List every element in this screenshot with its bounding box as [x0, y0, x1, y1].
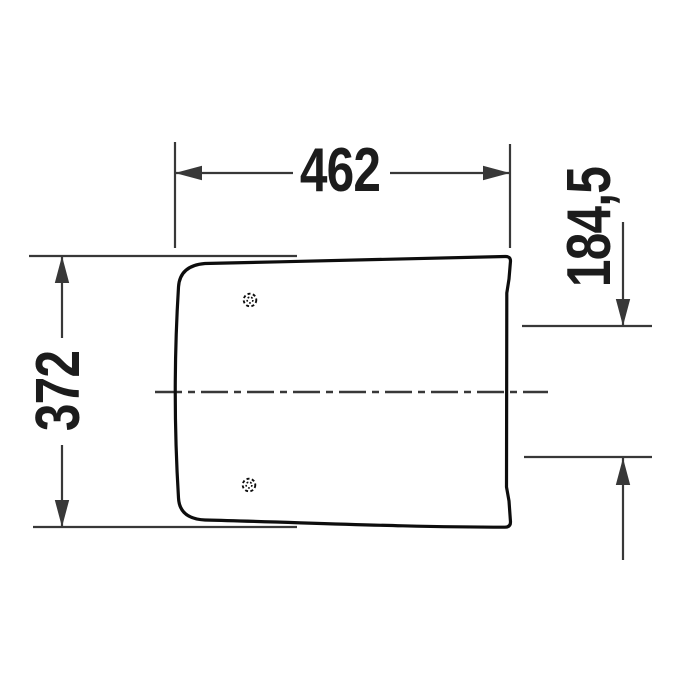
hinge-hole-bottom-outer-circle — [243, 479, 256, 492]
hinge-hole-top-inner-circle — [247, 297, 253, 303]
dim-offset-label: 184,5 — [559, 167, 621, 287]
dim-width-label: 462 — [300, 140, 380, 202]
dim-width-arrow-left — [175, 166, 202, 180]
hinge-hole-bottom — [243, 479, 256, 492]
dim-offset-arrow-down — [616, 299, 630, 326]
hinge-hole-top-outer-circle — [244, 294, 257, 307]
drawing-linework — [0, 0, 700, 700]
dim-depth-arrow-up — [55, 256, 69, 283]
dim-depth-label: 372 — [28, 351, 90, 431]
dim-depth-arrow-down — [55, 500, 69, 527]
hinge-hole-top — [244, 294, 257, 307]
dim-offset-arrow-up — [616, 458, 630, 485]
hinge-hole-bottom-inner-circle — [246, 482, 252, 488]
dim-width-arrow-right — [483, 166, 510, 180]
technical-drawing-canvas: 462 372 184,5 — [0, 0, 700, 700]
